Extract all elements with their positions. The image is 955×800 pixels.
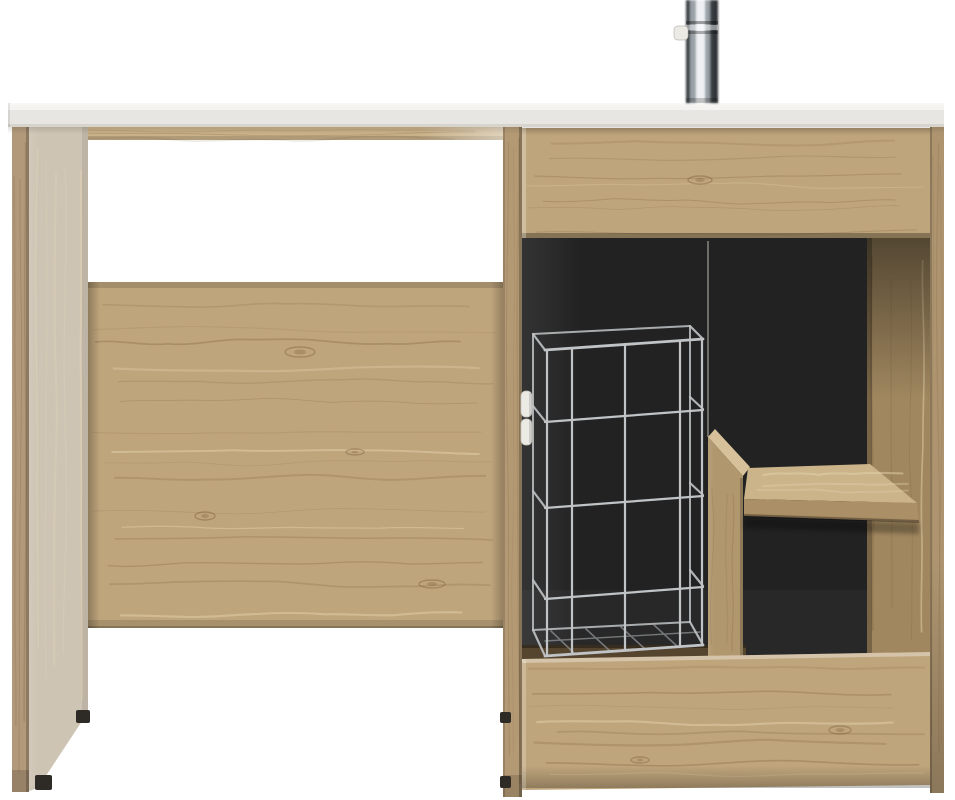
cabinet-left-wall <box>503 126 522 797</box>
product-photo <box>0 0 955 800</box>
top-drawer <box>522 128 930 238</box>
appliance-recess-section <box>12 126 503 792</box>
inner-right-wall <box>867 230 930 662</box>
tap-lever <box>674 26 688 40</box>
cabinet-photo <box>0 0 955 800</box>
back-panel <box>88 282 503 628</box>
tap-ring <box>686 21 718 24</box>
worktop <box>8 103 944 134</box>
bottom-drawer <box>522 652 930 790</box>
right-panel <box>930 126 944 793</box>
left-leg <box>12 126 88 792</box>
right-cabinet <box>500 126 944 797</box>
tap <box>674 0 718 103</box>
